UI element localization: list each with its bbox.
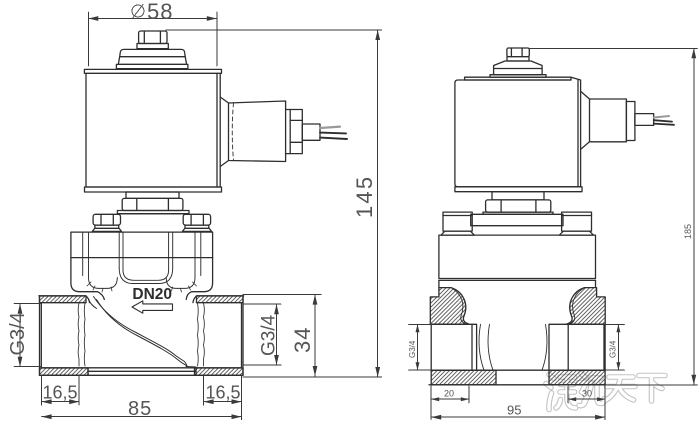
svg-text:30: 30: [582, 389, 592, 399]
svg-text:G3/4: G3/4: [609, 340, 618, 358]
svg-text:16,5: 16,5: [206, 383, 241, 403]
svg-text:185: 185: [683, 224, 693, 239]
svg-text:145: 145: [352, 175, 377, 218]
svg-text:G3/4: G3/4: [408, 340, 417, 358]
svg-text:58: 58: [147, 0, 173, 24]
svg-text:G3/4: G3/4: [7, 312, 29, 355]
svg-text:G3/4: G3/4: [259, 314, 280, 356]
svg-text:DN20: DN20: [132, 286, 172, 303]
svg-text:16,5: 16,5: [43, 383, 78, 403]
svg-text:20: 20: [444, 389, 454, 399]
svg-text:95: 95: [507, 403, 521, 418]
svg-text:85: 85: [128, 398, 152, 420]
svg-text:34: 34: [290, 327, 315, 353]
